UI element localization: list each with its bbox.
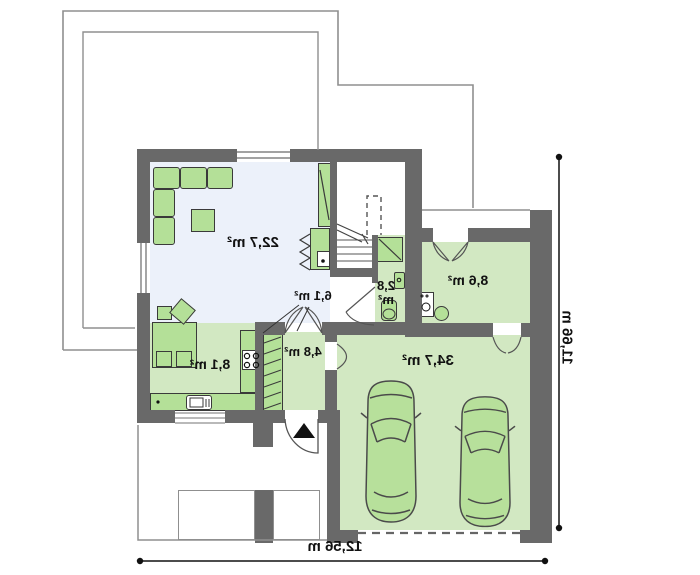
vestibule-area-label: 4,8 m² — [273, 344, 333, 359]
living-room-area-label: 22,7 m² — [213, 234, 293, 251]
wall — [372, 235, 378, 283]
wc-area-label: 2,8 m² — [366, 279, 406, 307]
floor-plan: 22,7 m² 6,1 m² 2,8 m² 8,6 m² 34,7 m² 4,8… — [0, 0, 700, 575]
entrance-arrow — [293, 423, 315, 438]
wc-area-unit: m² — [366, 293, 406, 307]
fireplace-hearth — [317, 251, 330, 267]
shower — [377, 237, 403, 262]
wall — [137, 149, 150, 243]
sofa-cushion — [153, 189, 175, 217]
sofa-cushion — [180, 167, 207, 189]
wall — [318, 410, 340, 423]
sofa-cushion — [207, 167, 233, 189]
wall — [322, 322, 405, 335]
garage-area-label: 34,7 m² — [388, 352, 468, 369]
wall — [137, 149, 237, 162]
wall — [253, 415, 273, 447]
window-top — [237, 149, 290, 162]
wall — [327, 413, 340, 543]
utility-room-area-label: 8,6 m² — [428, 272, 508, 288]
wall — [405, 228, 433, 242]
overall-height-dimension-label: 11,66 m — [559, 298, 576, 378]
wall — [337, 268, 375, 277]
overall-width-dimension-label: 12,56 m — [295, 538, 375, 555]
entrance-step — [178, 490, 255, 540]
wall — [290, 149, 422, 162]
window-kitchen — [175, 410, 225, 423]
kitchen-area-label: 8,1 m² — [170, 356, 250, 372]
wall — [330, 162, 337, 277]
wall — [137, 410, 175, 423]
door-entrance-arc — [285, 419, 318, 453]
wall — [325, 335, 337, 342]
wall — [530, 210, 552, 543]
hall-area-label: 6,1 m² — [283, 288, 343, 303]
niche-band — [433, 208, 530, 230]
water-heater — [434, 306, 449, 321]
entrance-step — [273, 490, 320, 540]
porch-pillar — [255, 490, 273, 543]
wall — [405, 323, 493, 337]
kitchen-sink — [186, 395, 212, 410]
sofa-cushion — [153, 217, 175, 245]
wall — [263, 322, 285, 335]
wall — [468, 228, 535, 242]
coffee-table — [191, 209, 215, 232]
sofa-cushion — [153, 167, 180, 189]
dimension-line-bottom — [137, 558, 548, 564]
wall — [521, 323, 535, 337]
wall — [255, 322, 263, 423]
wc-area-value: 2,8 — [366, 279, 406, 293]
wall — [325, 370, 337, 413]
window-left — [137, 243, 150, 293]
wall — [520, 530, 552, 543]
wall — [137, 293, 150, 423]
